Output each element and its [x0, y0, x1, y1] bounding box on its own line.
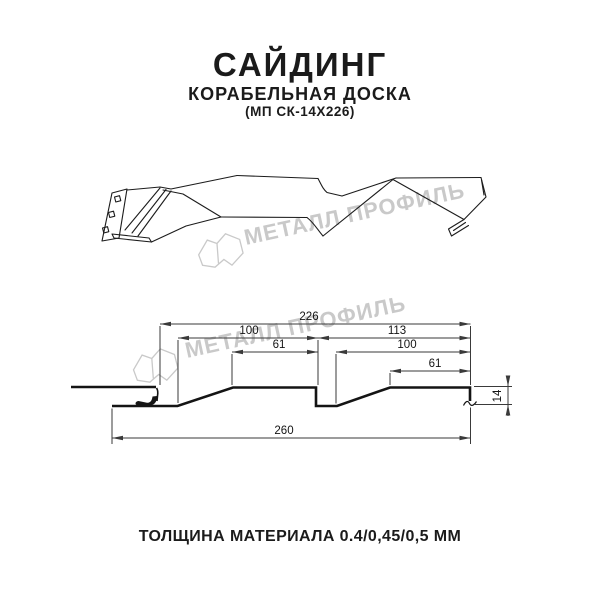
watermark-3d: МЕТАЛЛ ПРОФИЛЬ — [196, 177, 467, 270]
nail-hole — [115, 196, 121, 202]
lock-bottom-fold — [112, 234, 152, 242]
dim-label-14: 14 — [492, 389, 504, 402]
nail-hole — [103, 227, 109, 233]
dim-label-113: 113 — [388, 325, 406, 337]
profile-section-view — [71, 387, 477, 406]
board1-top-back — [237, 176, 318, 179]
groove-step-back — [318, 179, 342, 197]
dim-label-61-right: 61 — [429, 358, 442, 370]
dim-label-100-right: 100 — [397, 339, 416, 351]
lock-band — [132, 190, 166, 234]
end-cut — [464, 178, 486, 220]
metall-profil-logo-icon — [131, 346, 180, 385]
lock-band — [125, 188, 160, 230]
board1-slope-cut — [163, 190, 221, 217]
board1-top-front — [221, 217, 307, 218]
product-drawing-card: САЙДИНГ КОРАБЕЛЬНАЯ ДОСКА (МП СК-14Х226)… — [0, 0, 600, 600]
dim-label-260: 260 — [274, 425, 293, 437]
lock-band — [138, 191, 171, 236]
nail-hole — [109, 211, 115, 217]
metall-profil-logo-icon — [196, 231, 245, 270]
lock-band — [127, 187, 160, 190]
lock-seam-detail — [136, 396, 158, 406]
board1-slope-top — [160, 176, 237, 190]
board2-top-back — [396, 178, 481, 179]
end-hem-inner — [454, 223, 466, 231]
dim-label-226: 226 — [299, 311, 318, 323]
board1-front-edge — [152, 217, 222, 242]
technical-drawing-canvas: МЕТАЛЛ ПРОФИЛЬ — [0, 0, 600, 600]
watermark-brand-text: МЕТАЛЛ ПРОФИЛЬ — [242, 177, 467, 249]
material-thickness-note: ТОЛЩИНА МАТЕРИАЛА 0.4/0,45/0,5 ММ — [0, 528, 600, 546]
dim-label-100-left: 100 — [239, 325, 258, 337]
dim-label-61-left: 61 — [273, 339, 286, 351]
dimension-lines — [112, 324, 512, 444]
panel-outline — [112, 388, 470, 407]
